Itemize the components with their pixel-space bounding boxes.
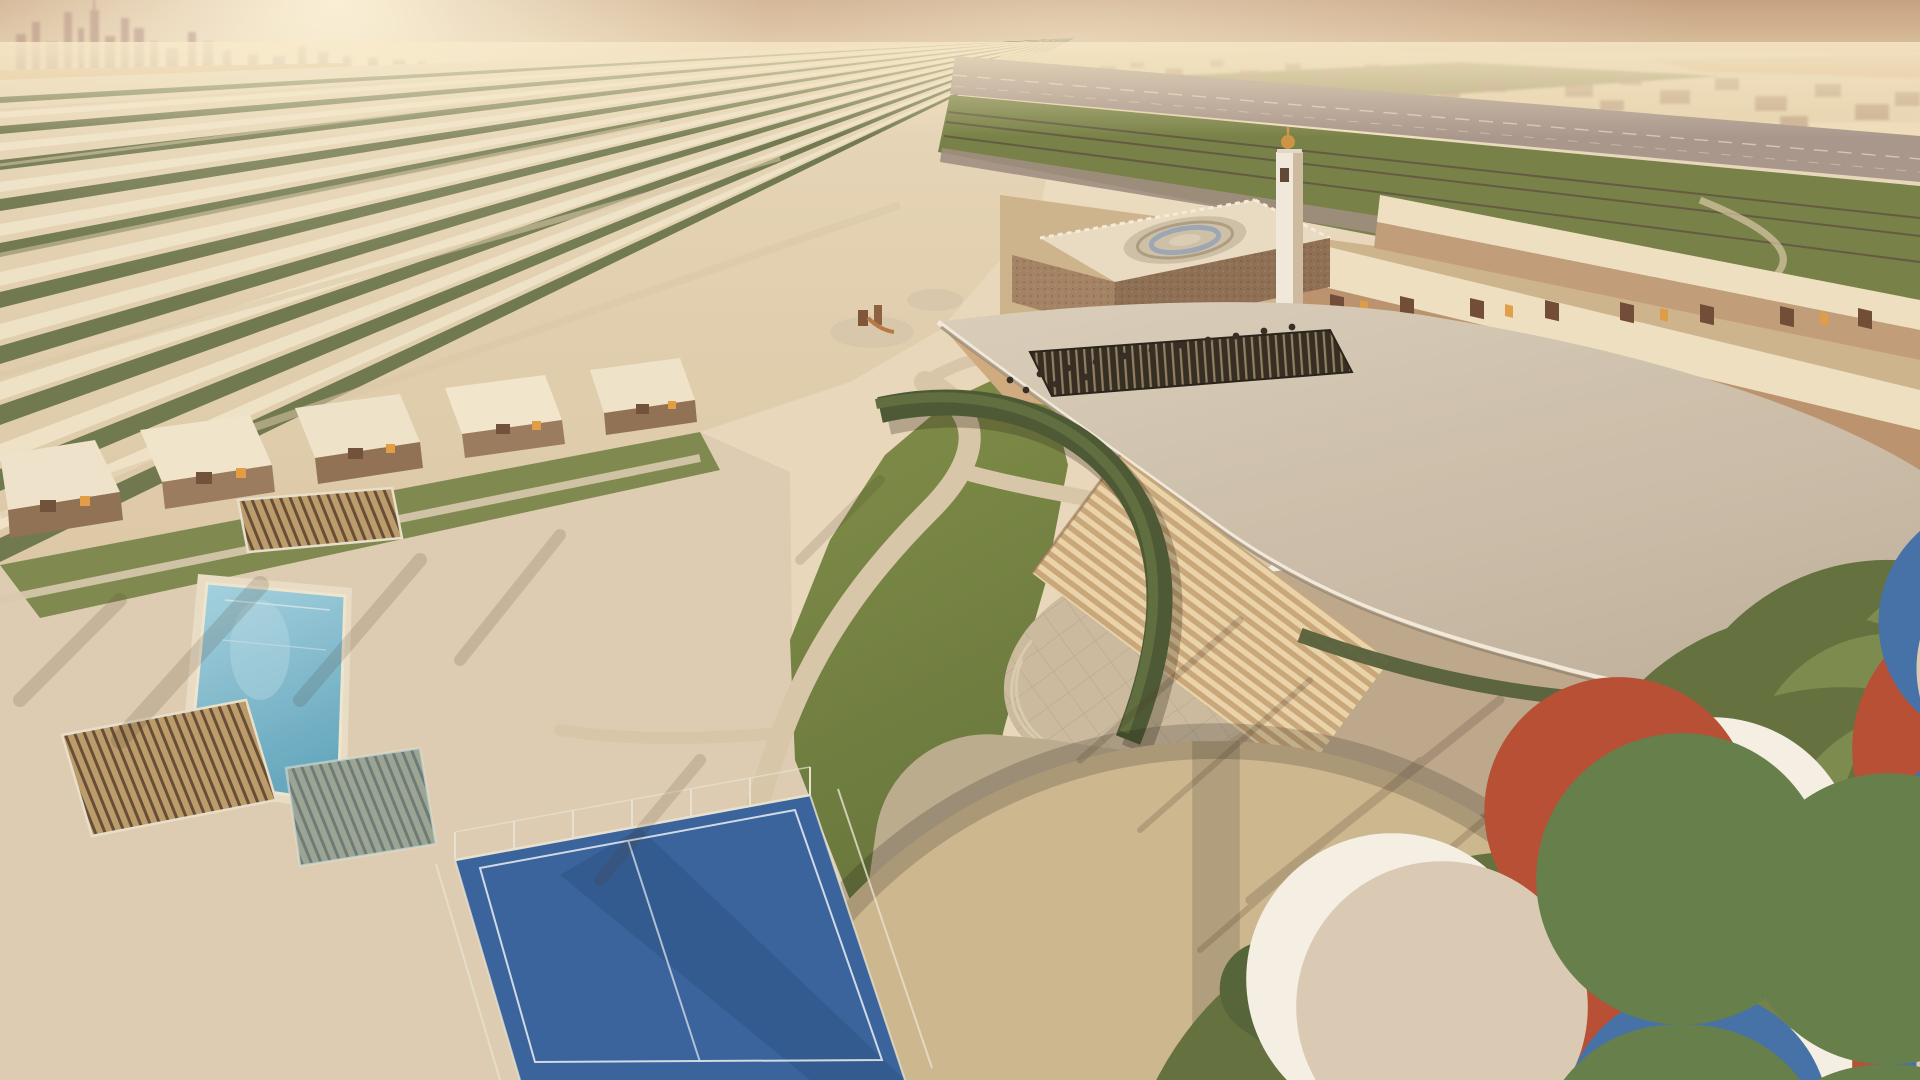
community-aerial-render (0, 0, 1920, 1080)
render-stage (0, 0, 1920, 1080)
